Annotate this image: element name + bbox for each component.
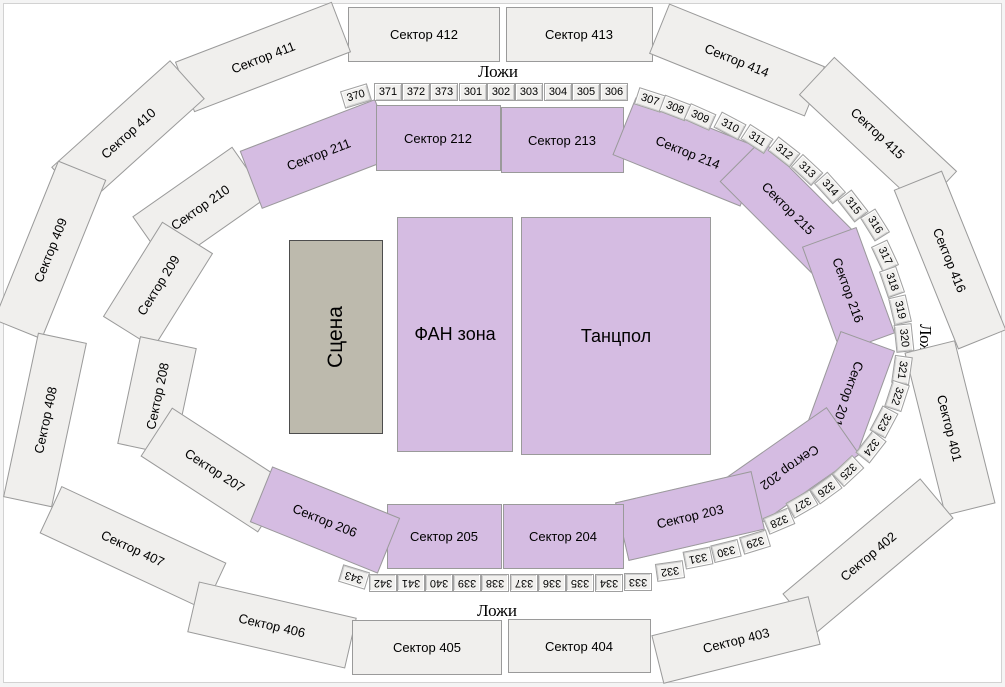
lodge-305[interactable]: 305 (572, 83, 600, 101)
lodge-303[interactable]: 303 (515, 83, 543, 101)
lodge-371[interactable]: 371 (374, 83, 402, 101)
sector-204[interactable]: Сектор 204 (503, 504, 624, 569)
lodge-332[interactable]: 332 (655, 560, 685, 582)
lodge-335[interactable]: 335 (566, 574, 594, 592)
fan-zone-label: ФАН зона (414, 324, 495, 345)
stage-label: Сцена (324, 306, 348, 368)
lodge-340[interactable]: 340 (425, 574, 453, 592)
lodge-373[interactable]: 373 (430, 83, 458, 101)
sector-213[interactable]: Сектор 213 (501, 107, 624, 173)
lodge-337[interactable]: 337 (510, 574, 538, 592)
sector-404: Сектор 404 (508, 619, 651, 673)
dance-floor-area[interactable]: Танцпол (521, 217, 711, 455)
lodge-333[interactable]: 333 (624, 573, 652, 591)
sector-413: Сектор 413 (506, 7, 653, 62)
stage-area: Сцена (289, 240, 383, 434)
lodge-342[interactable]: 342 (369, 574, 397, 592)
lodges-label-top: Ложи (478, 62, 518, 82)
lodge-306[interactable]: 306 (600, 83, 628, 101)
sector-412: Сектор 412 (348, 7, 500, 62)
lodge-341[interactable]: 341 (397, 574, 425, 592)
venue-seating-map: Ложи Ложи Ложи Сцена ФАН зона Танцпол Се… (0, 0, 1005, 687)
lodge-339[interactable]: 339 (453, 574, 481, 592)
sector-212[interactable]: Сектор 212 (376, 105, 501, 171)
sector-205[interactable]: Сектор 205 (387, 504, 502, 569)
lodge-338[interactable]: 338 (481, 574, 509, 592)
dance-floor-label: Танцпол (581, 326, 651, 347)
lodge-336[interactable]: 336 (538, 574, 566, 592)
lodge-304[interactable]: 304 (544, 83, 572, 101)
lodge-372[interactable]: 372 (402, 83, 430, 101)
fan-zone-area[interactable]: ФАН зона (397, 217, 513, 452)
lodge-301[interactable]: 301 (459, 83, 487, 101)
lodges-label-bottom: Ложи (477, 601, 517, 621)
lodge-320[interactable]: 320 (894, 323, 915, 353)
sector-405: Сектор 405 (352, 620, 502, 675)
lodge-334[interactable]: 334 (595, 574, 623, 592)
lodge-302[interactable]: 302 (487, 83, 515, 101)
